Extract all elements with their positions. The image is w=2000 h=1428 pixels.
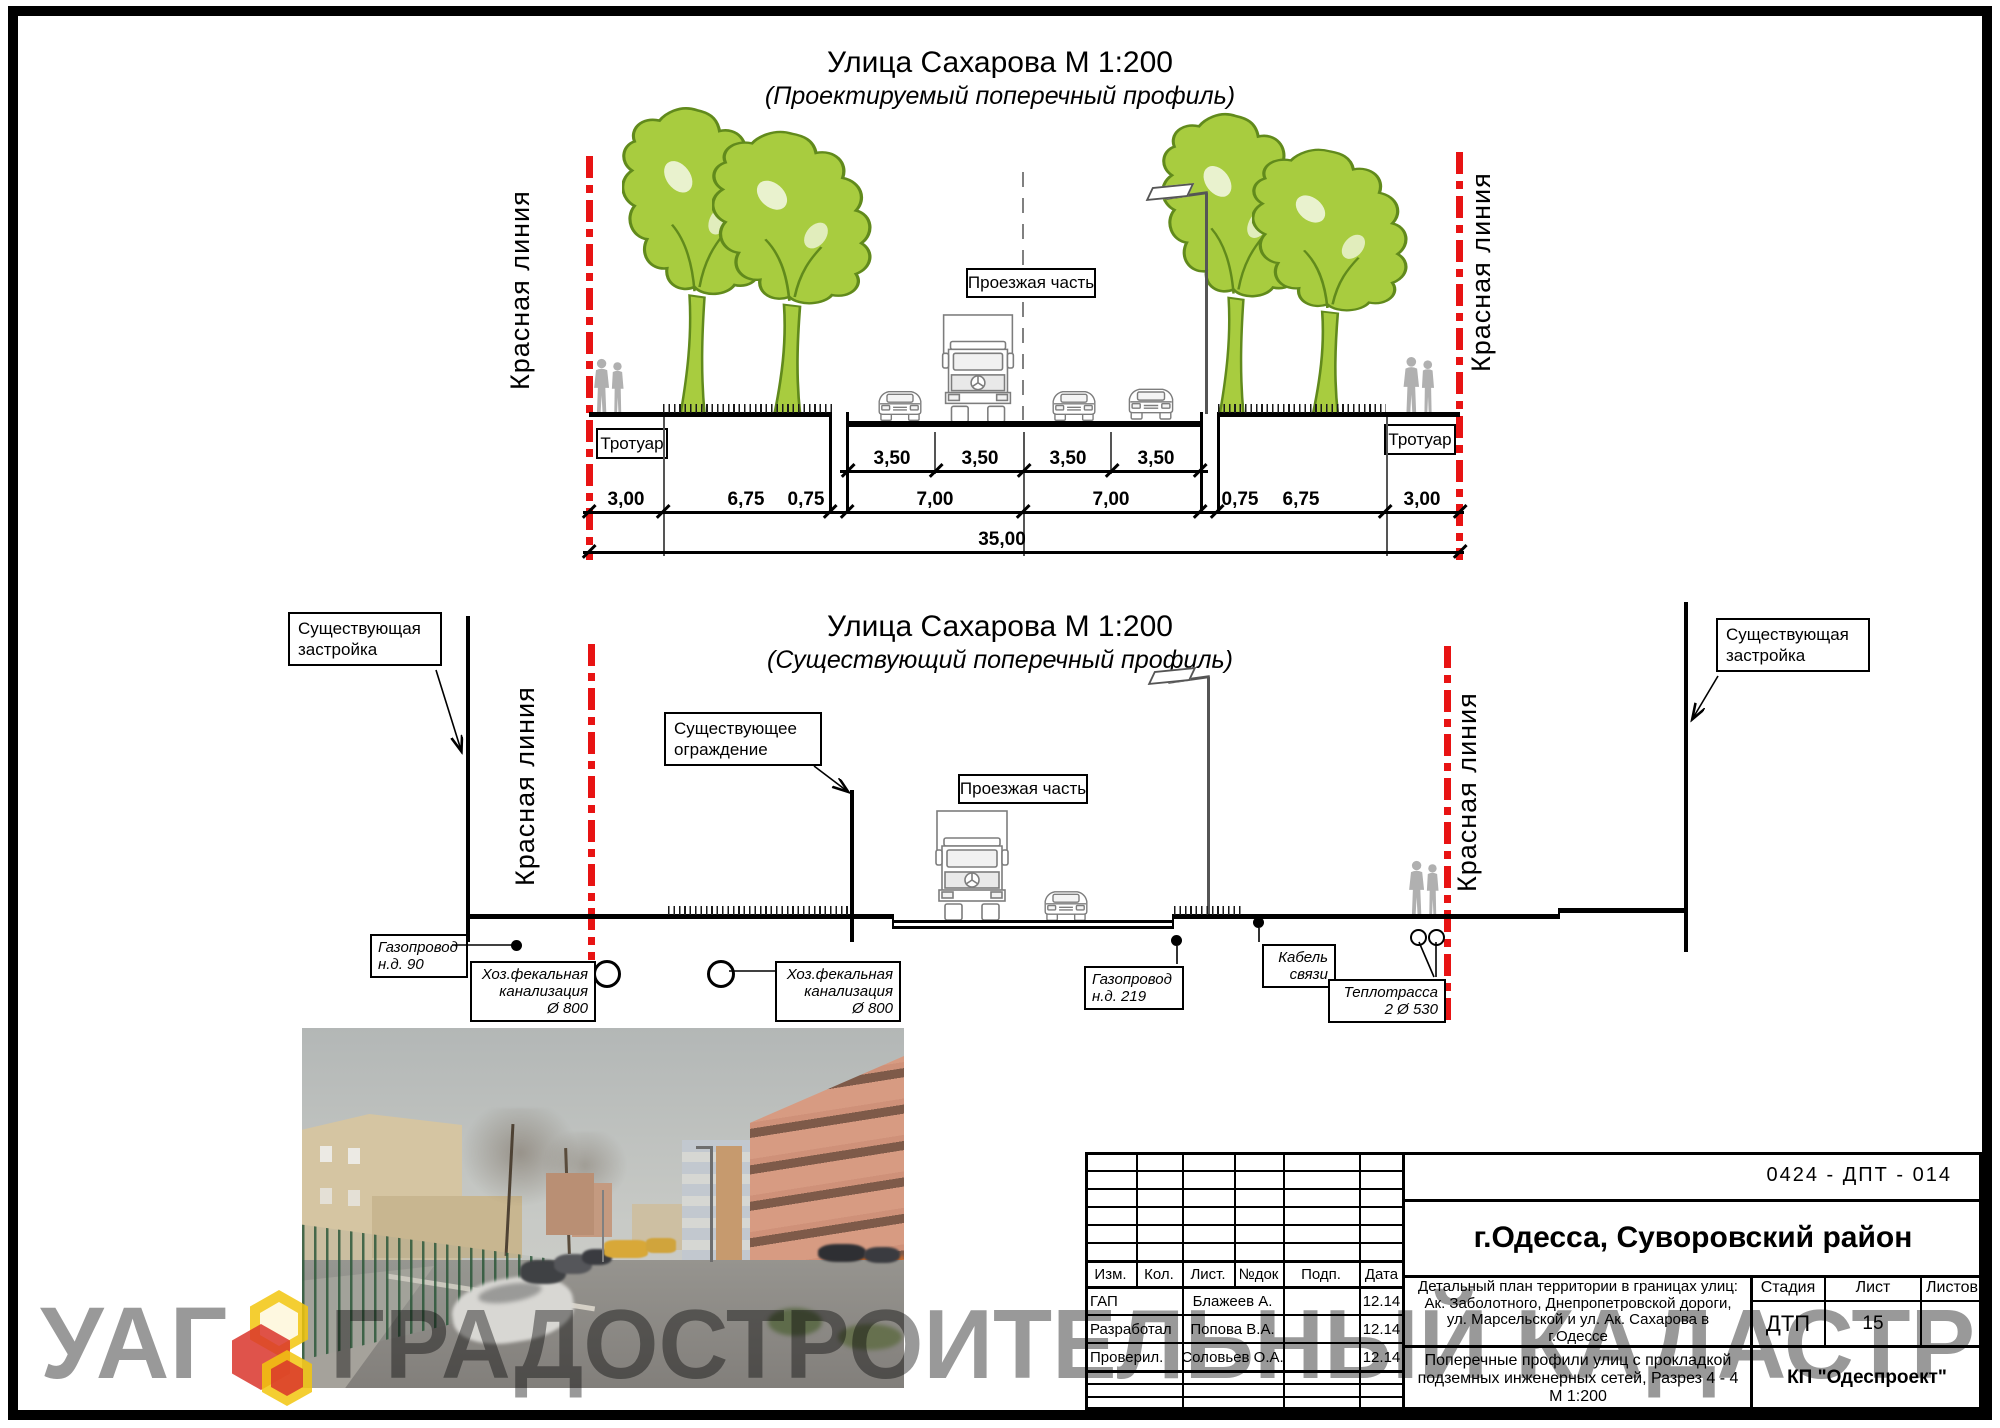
photo-shrub [768, 1308, 822, 1336]
red-line-right-label: Красная линия [1452, 692, 1483, 892]
sig-date: 12.14 [1359, 1316, 1404, 1342]
stage-label: Стадия [1752, 1276, 1824, 1300]
road-surface-line [892, 920, 1174, 923]
lane-dim: 3,50 [1050, 448, 1087, 470]
callout-line: Газопровод [378, 939, 460, 956]
sidewalk-line [589, 412, 665, 417]
photo-parked-car [818, 1244, 866, 1262]
ground-line [1244, 914, 1560, 919]
tb-hline [1085, 1242, 1404, 1244]
ground-line [854, 914, 894, 919]
lane-dim: 3,50 [962, 448, 999, 470]
sidewalk-line [1384, 412, 1460, 417]
drawing-title-line: М 1:200 [1408, 1388, 1748, 1406]
existing-fence-label: Существующее ограждение [664, 712, 822, 766]
tb-hline [1085, 1224, 1404, 1226]
tb-col-ndoc: №док [1234, 1262, 1283, 1286]
ground-line [1560, 908, 1686, 913]
photo-shrub [838, 1324, 902, 1350]
red-line-left [588, 644, 595, 960]
car-front [874, 382, 926, 424]
tree-group-left-2 [712, 128, 872, 416]
sig-name: Блажеев А. [1182, 1288, 1283, 1314]
tb-col-izm: Изм. [1085, 1262, 1136, 1286]
project-line: г.Одессе [1408, 1329, 1748, 1346]
title-block-city: г.Одесса, Суворовский район [1404, 1202, 1982, 1274]
red-line-left-label: Красная линия [505, 190, 536, 390]
main-dim: 3,00 [608, 489, 645, 511]
main-dim: 6,75 [1283, 489, 1320, 511]
tb-col-kol: Кол. [1136, 1262, 1182, 1286]
label-line: застройка [1726, 645, 1860, 666]
existing-building-left-label: Существующая застройка [288, 612, 442, 666]
doc-code: 0424 - ДПТ - 014 [1404, 1152, 1952, 1199]
gas-pipe-marker [511, 940, 522, 951]
photo-window [348, 1190, 360, 1206]
drawing-title: Поперечные профили улиц с прокладкой под… [1408, 1352, 1748, 1408]
main-dim: 3,00 [1404, 489, 1441, 511]
pedestrians-right [1398, 356, 1442, 414]
project-line: Детальный план территории в границах ули… [1408, 1279, 1748, 1296]
main-dim: 6,75 [728, 489, 765, 511]
truck-front [932, 810, 1012, 922]
pedestrians-left [588, 358, 632, 414]
street-lamp-pole [1207, 678, 1210, 916]
tb-hline [1085, 1206, 1404, 1208]
fence-line [850, 790, 854, 942]
car-front [1040, 884, 1092, 922]
gas219-callout: Газопровод н.д. 219 [1084, 966, 1184, 1010]
pedestrians-right [1404, 860, 1446, 916]
sewer-right-callout: Хоз.фекальная канализация Ø 800 [775, 961, 901, 1022]
tb-col-data: Дата [1359, 1262, 1404, 1286]
curb-face [846, 412, 849, 512]
gas90-callout: Газопровод н.д. 90 [370, 934, 468, 978]
photo-parked-car [864, 1247, 900, 1263]
photo-lamp-arm [696, 1146, 712, 1149]
callout-line: канализация [478, 983, 588, 1000]
street-lamp-pole [1205, 194, 1208, 414]
tb-col-list: Лист. [1182, 1262, 1234, 1286]
label-line: Существующая [298, 618, 432, 639]
callout-line: Теплотрасса [1336, 984, 1438, 1001]
curb-face [829, 412, 832, 512]
total-dim: 35,00 [978, 529, 1026, 551]
curb-face [1217, 412, 1220, 512]
red-line-right-label: Красная линия [1466, 172, 1497, 372]
tb-hline [1085, 1188, 1404, 1190]
tb-col-podp: Подп. [1283, 1262, 1359, 1286]
sig-date: 12.14 [1359, 1344, 1404, 1370]
road-surface-line [846, 421, 1202, 427]
main-dim: 0,75 [788, 489, 825, 511]
lane-dim: 3,50 [1138, 448, 1175, 470]
sheets-label: Листов [1922, 1276, 1982, 1300]
callout-line: Кабель [1270, 949, 1328, 966]
photo-window [348, 1148, 360, 1164]
sheet-value: 15 [1826, 1302, 1920, 1345]
building-line-left [466, 616, 470, 942]
drawing-title-line: подземных инженерных сетей, Разрез 4 - 4 [1408, 1370, 1748, 1388]
gas-pipe-marker [1171, 935, 1182, 946]
callout-line: Ø 800 [478, 1000, 588, 1017]
photo-bus [646, 1238, 676, 1253]
sewer-marker [707, 960, 735, 988]
callout-line: н.д. 90 [378, 956, 460, 973]
tree-group-right-2 [1252, 146, 1408, 416]
street-photo [302, 1028, 904, 1388]
callout-line: канализация [783, 983, 893, 1000]
cable-marker [1253, 917, 1264, 928]
heat-pipe-marker [1428, 929, 1445, 946]
photo-window [320, 1146, 332, 1162]
curb-face [892, 914, 894, 929]
sheets-value [1922, 1302, 1982, 1345]
sig-role: ГАП [1085, 1288, 1185, 1314]
roadway-label: Проезжая часть [958, 774, 1088, 804]
grass-hatch [1174, 906, 1244, 915]
heat-callout: Теплотрасса 2 Ø 530 [1328, 979, 1446, 1023]
sig-name: Соловьев О.А. [1182, 1344, 1283, 1370]
main-dim: 7,00 [1093, 489, 1130, 511]
existing-building-right-label: Существующая застройка [1716, 618, 1870, 672]
existing-subtitle: (Существующий поперечный профиль) [650, 646, 1350, 675]
main-dim: 7,00 [917, 489, 954, 511]
callout-line: н.д. 219 [1092, 988, 1176, 1005]
roadway-label: Проезжая часть [966, 268, 1096, 298]
heat-pipe-marker [1410, 929, 1427, 946]
photo-window [320, 1188, 332, 1204]
company-name: КП "Одеспроект" [1752, 1348, 1982, 1408]
project-description: Детальный план территории в границах ули… [1408, 1279, 1748, 1343]
stage-value: ДТП [1752, 1302, 1824, 1345]
curb-face [1200, 412, 1203, 512]
road-base-line [892, 926, 1174, 929]
red-line-left-label: Красная линия [510, 686, 541, 886]
sig-date: 12.14 [1359, 1288, 1404, 1314]
ground-line [468, 914, 670, 919]
main-dim: 0,75 [1222, 489, 1259, 511]
sig-role: Разработал [1085, 1316, 1185, 1342]
tb-hline [1085, 1170, 1404, 1172]
project-line: ул. Марсельской и ул. Ак. Сахарова в [1408, 1312, 1748, 1329]
callout-line: Газопровод [1092, 971, 1176, 988]
sidewalk-label-left: Тротуар [596, 428, 668, 459]
sidewalk-label-right: Тротуар [1384, 424, 1456, 455]
grass-hatch [668, 906, 854, 915]
building-line-right [1684, 602, 1688, 952]
tb-hline [1085, 1370, 1404, 1373]
photo-bus [604, 1240, 648, 1258]
red-line-right [1444, 646, 1451, 1026]
drawing-title-line: Поперечные профили улиц с прокладкой [1408, 1352, 1748, 1370]
label-line: застройка [298, 639, 432, 660]
label-line: ограждение [674, 739, 812, 760]
tb-hline [1085, 1383, 1404, 1385]
dim-line-total [583, 551, 1464, 554]
lane-dim: 3,50 [874, 448, 911, 470]
callout-line: 2 Ø 530 [1336, 1001, 1438, 1018]
car-front [1124, 380, 1178, 422]
grass-hatch [1218, 404, 1386, 413]
proposed-title: Улица Сахарова М 1:200 [650, 46, 1350, 80]
existing-title: Улица Сахарова М 1:200 [650, 610, 1350, 644]
callout-line: Хоз.фекальная [783, 966, 893, 983]
sewer-marker [593, 960, 621, 988]
sewer-left-callout: Хоз.фекальная канализация Ø 800 [470, 961, 596, 1022]
callout-line: Ø 800 [783, 1000, 893, 1017]
photo-lamp-post [710, 1146, 713, 1262]
truck-front [938, 314, 1018, 424]
sig-role: Проверил. [1085, 1344, 1185, 1370]
label-line: Существующая [1726, 624, 1860, 645]
extension-line [663, 417, 665, 556]
tb-hline [1085, 1396, 1404, 1398]
callout-line: связи [1270, 966, 1328, 983]
red-line-right [1456, 152, 1463, 560]
sig-name: Попова В.А. [1182, 1316, 1283, 1342]
car-front [1048, 382, 1100, 424]
label-line: Существующее [674, 718, 812, 739]
grass-hatch [663, 404, 832, 413]
drawing-sheet: Улица Сахарова М 1:200 (Проектируемый по… [0, 0, 2000, 1428]
project-line: Ак. Заболотного, Днепропетровской дороги… [1408, 1296, 1748, 1313]
photo-lamp-post [602, 1190, 604, 1262]
extension-line [1386, 417, 1388, 556]
photo-distant-towers [546, 1173, 594, 1235]
callout-line: Хоз.фекальная [478, 966, 588, 983]
sheet-label: Лист [1826, 1276, 1920, 1300]
cable-callout: Кабель связи [1262, 944, 1336, 988]
